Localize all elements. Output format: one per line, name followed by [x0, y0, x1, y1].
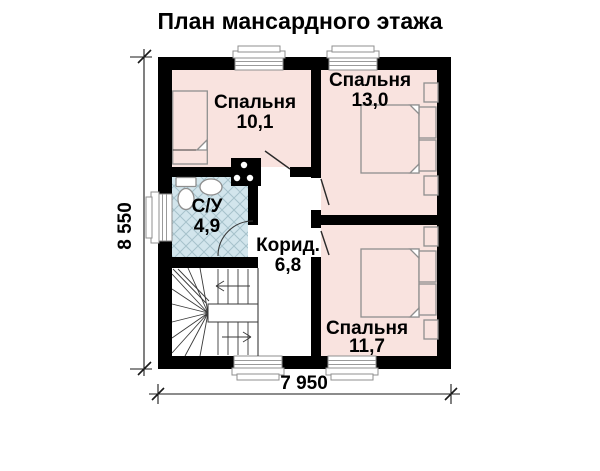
bed-pillow: [419, 251, 436, 282]
dim-height-value: 8 550: [115, 202, 136, 250]
dim-width-value: 7 950: [280, 373, 328, 394]
window-glazing: [329, 57, 377, 70]
wall-top: [158, 57, 451, 70]
wall-center-lower: [311, 257, 321, 356]
window-sill-cap: [332, 46, 374, 52]
vent-hole: [247, 175, 253, 181]
bed-mattress: [361, 249, 419, 317]
window-top-left: [233, 46, 285, 70]
nightstand: [424, 320, 438, 339]
bed-frame: [173, 91, 208, 164]
nightstand: [424, 176, 438, 195]
label-corridor-area: 6,8: [275, 255, 301, 276]
wall-bedrooms-divider: [321, 215, 438, 225]
label-corridor-name: Корид.: [256, 235, 320, 256]
stair-landing: [208, 304, 258, 322]
window-sill-cap: [238, 46, 280, 52]
toilet-tank-symbol: [176, 178, 196, 187]
wall-center-middle: [311, 210, 321, 228]
window-top-right: [327, 46, 379, 70]
wall-right: [437, 57, 451, 369]
window-glazing: [328, 356, 376, 369]
label-bedroom-top-right-name: Спальня: [329, 70, 411, 91]
single-bed-symbol: [173, 91, 208, 164]
stair-up-arrow: [216, 281, 250, 291]
nightstand: [424, 227, 438, 246]
window-bottom-left: [232, 356, 284, 380]
window-bottom-right: [326, 356, 378, 380]
vent-hole: [234, 175, 240, 181]
dimension-bottom: 7 950: [149, 373, 460, 404]
window-sill-cap: [331, 374, 373, 380]
wall-bottom: [158, 356, 451, 369]
chimney-block: [231, 158, 261, 186]
window-glazing: [235, 57, 283, 70]
chimney-body: [231, 158, 261, 186]
bed-pillow: [419, 140, 436, 171]
label-bedroom-bottom-right-area: 11,7: [349, 336, 385, 357]
vent-hole: [241, 162, 247, 168]
label-bedroom-top-left-area: 10,1: [237, 112, 274, 133]
wall-bedroom1-bottom-left: [172, 167, 231, 177]
wall-center-upper: [311, 70, 321, 178]
bed-pillow: [419, 107, 436, 138]
wall-bathroom-bottom: [172, 257, 258, 268]
nightstand: [424, 83, 438, 102]
window-glazing: [234, 356, 282, 369]
window-glazing: [158, 194, 172, 241]
window-sill-cap: [237, 374, 279, 380]
bed-mattress: [361, 105, 419, 173]
staircase: [172, 268, 258, 356]
sink-symbol: [200, 179, 222, 195]
label-bathroom-name: С/У: [192, 196, 223, 217]
window-left-bathroom: [146, 192, 172, 243]
label-bathroom-area: 4,9: [194, 216, 220, 237]
bed-pillow: [419, 284, 436, 315]
stair-down-arrow: [222, 332, 251, 342]
label-bedroom-top-left-name: Спальня: [214, 92, 296, 113]
window-sill-cap: [146, 197, 152, 238]
wall-bedroom1-bottom-right: [290, 167, 311, 177]
floor-plan-drawing: Спальня 10,1 Спальня 13,0 С/У 4,9 Корид.…: [0, 0, 600, 471]
floor-plan-page: План мансардного этажа: [0, 0, 600, 471]
label-bedroom-top-right-area: 13,0: [352, 90, 389, 111]
